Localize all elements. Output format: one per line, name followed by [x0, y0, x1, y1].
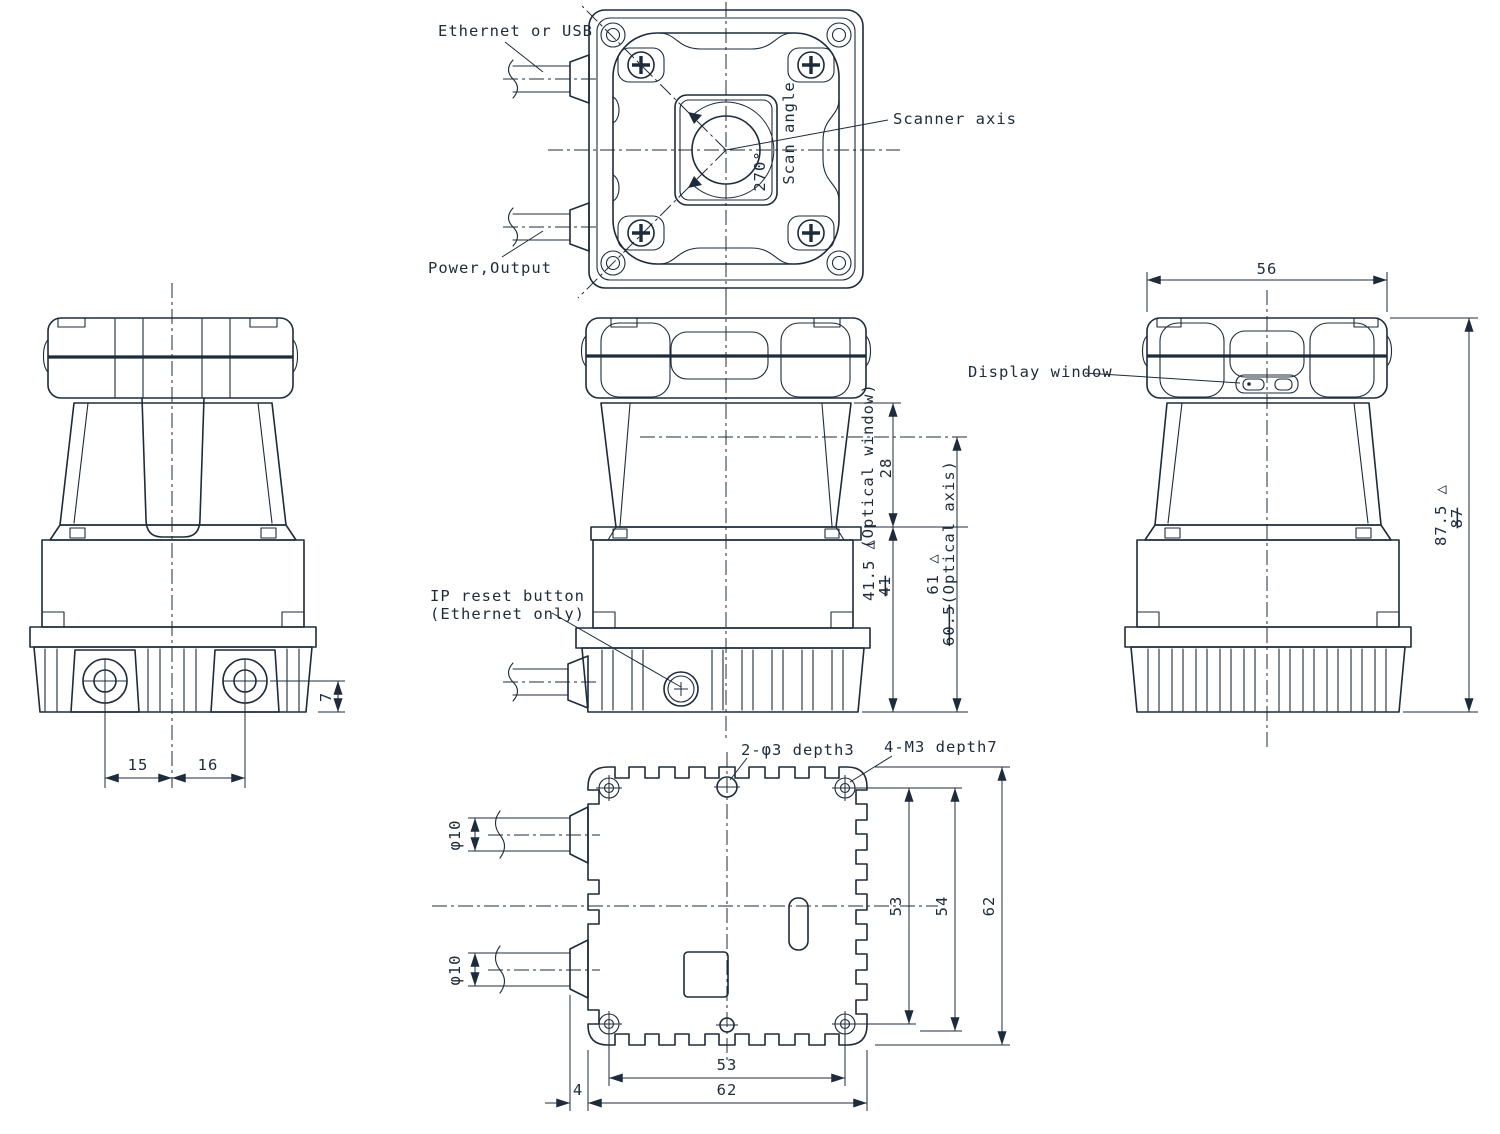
mount-boss-left — [71, 650, 139, 712]
base-lip — [1125, 627, 1411, 647]
lower-body — [1137, 540, 1399, 627]
label-ethernet-or-usb: Ethernet or USB — [438, 22, 593, 40]
base-fins — [602, 650, 843, 710]
dim-16: 16 — [198, 756, 219, 774]
power-leader — [502, 231, 543, 257]
screw-icon — [788, 48, 834, 82]
scan-arc-arrow-upper — [688, 112, 702, 124]
view-side-left: 7 15 16 — [30, 283, 345, 788]
bottom-cable-lower: φ10 — [446, 940, 600, 998]
optical-window-cone — [60, 403, 286, 525]
base-lip — [30, 627, 316, 647]
view-bottom: φ10 φ10 2-φ3 depth3 4-M3 depth7 53 54 62 — [432, 738, 1010, 1111]
label-power-output: Power,Output — [428, 259, 552, 277]
dim-53-horizontal: 53 — [717, 1056, 738, 1074]
dim-62-vertical: 62 — [980, 896, 998, 917]
ethernet-cable — [503, 55, 600, 103]
lower-body — [593, 540, 853, 628]
dim-41-old: 41 — [876, 576, 894, 597]
label-scanner-axis: Scanner axis — [893, 110, 1017, 128]
base-block — [34, 647, 312, 712]
head-pill-left — [1160, 323, 1224, 397]
scan-angle-value: 270° — [751, 150, 769, 191]
power-cable — [503, 203, 600, 251]
note-2-phi3: 2-φ3 depth3 — [741, 741, 855, 759]
label-optical-window: (Optical window) — [859, 383, 877, 548]
lower-body — [42, 540, 304, 627]
dim-62-horizontal: 62 — [717, 1081, 738, 1099]
base-lip — [576, 628, 870, 648]
view-top: 270° Scan angle Ethernet or USB Power,Ou… — [428, 2, 1017, 300]
dim-15: 15 — [128, 756, 149, 774]
shoulder-band — [1145, 525, 1391, 540]
view-front: IP reset button (Ethernet only) (Optical… — [430, 300, 968, 742]
label-display-window: Display window — [968, 363, 1113, 381]
screw-icon — [788, 216, 834, 250]
head-pill-left — [601, 323, 670, 397]
optical-window-cone — [1155, 403, 1381, 525]
front-cable — [503, 656, 600, 708]
view-side-right: Display window 56 87.5 △ 87 — [968, 260, 1478, 748]
head-pill-right — [781, 323, 850, 397]
dim-56: 56 — [1257, 260, 1278, 278]
dim-28: 28 — [877, 458, 895, 479]
note-4-m3: 4-M3 depth7 — [884, 738, 998, 756]
dim-phi10-lower: φ10 — [446, 955, 464, 986]
dim-60-5-optical-axis: 60.5(Optical axis) — [940, 460, 958, 646]
label-ip-reset-2: (Ethernet only) — [430, 605, 585, 623]
center-column — [142, 398, 204, 537]
dim-4: 4 — [573, 1081, 583, 1099]
technical-drawing-page: 270° Scan angle Ethernet or USB Power,Ou… — [0, 0, 1500, 1134]
ethernet-leader — [505, 42, 543, 72]
screw-icon — [618, 216, 664, 250]
phi3-note-leader — [730, 758, 747, 780]
ip-reset-leader — [552, 613, 681, 687]
mount-boss-right — [211, 650, 279, 712]
scanner-dimension-drawing: 270° Scan angle Ethernet or USB Power,Ou… — [0, 0, 1500, 1134]
dim-phi10-upper: φ10 — [446, 820, 464, 851]
display-led-dot — [1247, 382, 1251, 386]
dim-54: 54 — [933, 896, 951, 917]
dim-53-vertical: 53 — [887, 896, 905, 917]
scan-arc-arrow-lower — [688, 176, 702, 188]
head-pill-right — [1310, 323, 1374, 397]
dim-7: 7 — [317, 692, 335, 702]
bottom-square-recess — [684, 952, 728, 997]
scan-angle-label: Scan angle — [780, 81, 798, 184]
screw-icon — [618, 48, 664, 82]
bottom-cable-upper: φ10 — [446, 807, 600, 863]
label-ip-reset-1: IP reset button — [430, 587, 585, 605]
dim-87-old: 87 — [1448, 508, 1466, 529]
